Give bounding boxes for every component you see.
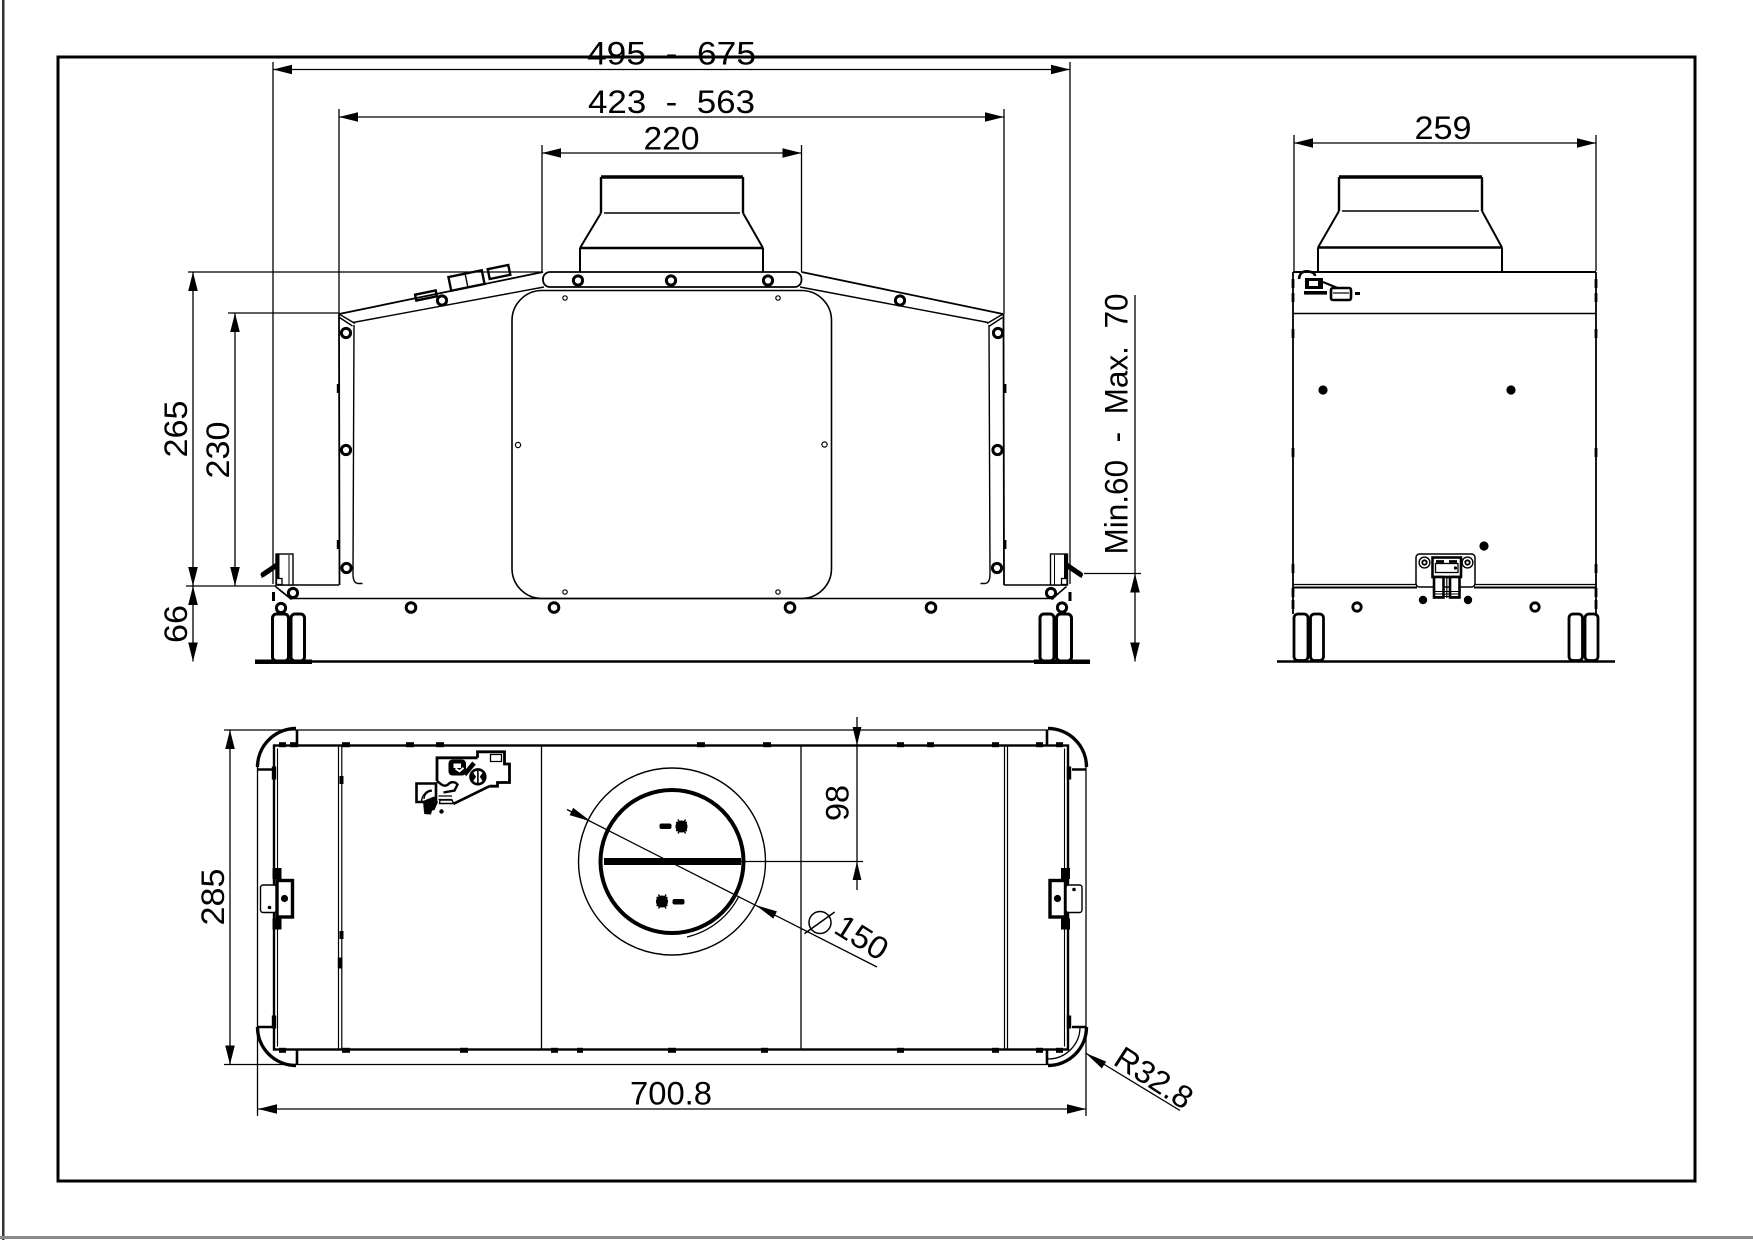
svg-text:220: 220 xyxy=(644,121,700,157)
svg-text:495 - 675: 495 - 675 xyxy=(587,36,756,72)
svg-text:700.8: 700.8 xyxy=(630,1076,712,1112)
svg-text:Min.60 - Max. 70: Min.60 - Max. 70 xyxy=(1099,294,1135,555)
svg-text:259: 259 xyxy=(1415,110,1472,146)
svg-text:265: 265 xyxy=(158,401,194,458)
svg-text:423 - 563: 423 - 563 xyxy=(588,84,755,120)
svg-text:98: 98 xyxy=(820,785,856,821)
svg-text:230: 230 xyxy=(200,422,236,479)
svg-text:66: 66 xyxy=(158,605,194,643)
svg-text:285: 285 xyxy=(195,869,231,926)
